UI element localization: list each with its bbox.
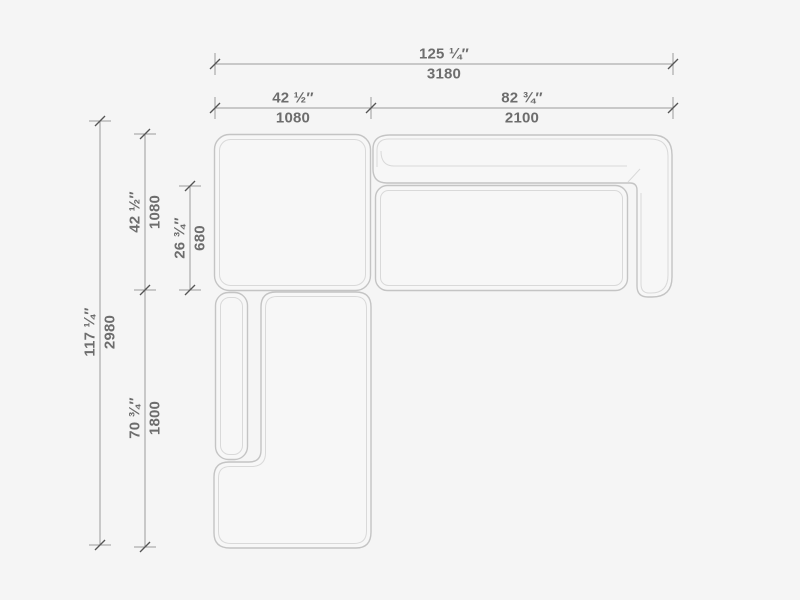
dim-overall-depth: 117 ¼″ 2980 [84,307,117,356]
dim-chaise-length-mm: 1800 [149,401,162,435]
dim-overall-width-inches: 125 ¼″ [419,48,469,61]
dim-left-section-depth: 42 ½″ 1080 [129,191,162,233]
corner-module-outline [215,135,371,291]
dim-right-section-width-mm: 2100 [505,112,539,125]
dim-left-section-width: 42 ½″ 1080 [272,92,314,125]
dim-left-section-depth-mm: 1080 [149,195,162,229]
dim-right-section-width: 82 ¾″ 2100 [501,92,543,125]
dim-overall-depth-inches: 117 ¼″ [84,307,97,356]
dim-overall-width: 125 ¼″ 3180 [419,48,469,81]
sofa-module-right-sofa [373,135,672,297]
dim-left-section-width-mm: 1080 [276,112,310,125]
dim-left-section-depth-inches: 42 ½″ [129,191,142,233]
right-sofa-seat-cushion [376,186,628,291]
dim-chaise-length-inches: 70 ¾″ [129,397,142,439]
dim-left-section-width-inches: 42 ½″ [272,92,314,105]
sofa-dimension-drawing: 125 ¼″ 3180 42 ½″ 1080 82 ¾″ 2100 117 ¼″… [0,0,800,600]
dim-overall-depth-mm: 2980 [104,315,117,349]
dim-seat-depth: 26 ¾″ 680 [174,217,207,259]
sofa-module-corner [215,135,371,291]
dim-chaise-length: 70 ¾″ 1800 [129,397,162,439]
dim-seat-depth-mm: 680 [194,225,207,251]
sofa-module-chaise [214,292,371,548]
dim-overall-width-mm: 3180 [427,68,461,81]
dim-seat-depth-inches: 26 ¾″ [174,217,187,259]
sofa-plan-svg [0,0,800,600]
dim-right-section-width-inches: 82 ¾″ [501,92,543,105]
dimension-lines [89,53,678,552]
